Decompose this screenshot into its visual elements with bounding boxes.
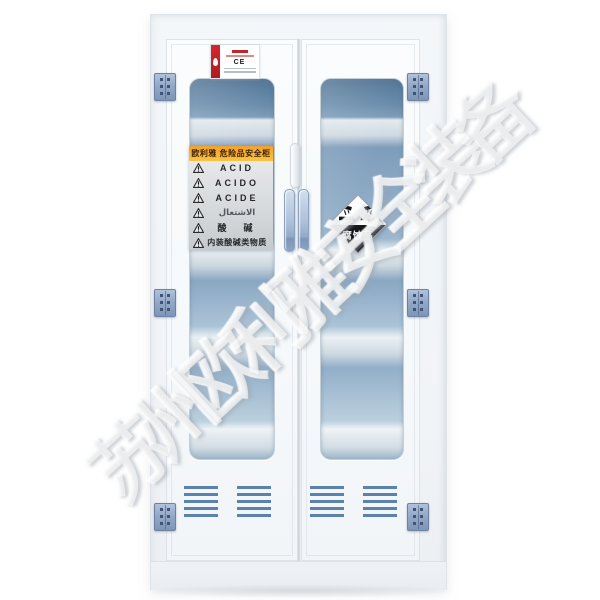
warning-triangle-icon	[193, 163, 204, 173]
warning-row-label: 酸 碱	[205, 221, 256, 234]
door-seam	[298, 39, 301, 561]
warning-row: 酸 碱	[189, 220, 273, 235]
warning-row-label: 内装酸碱类物质	[195, 237, 267, 248]
warning-row-label: الاشتعال	[207, 208, 255, 218]
label-fineprint-line	[224, 68, 256, 70]
warning-row-label: ACID	[208, 163, 254, 173]
warning-triangle-icon	[193, 208, 204, 218]
warning-triangle-icon	[193, 193, 204, 203]
vent-grille	[310, 486, 344, 518]
warning-row: ACIDO	[189, 176, 273, 191]
warning-label-body: ACID ACIDO ACIDE الاشتعال	[189, 161, 273, 250]
warning-label-header: 欧利雅 危险品安全柜	[189, 146, 273, 161]
certificate-label-body: CE	[220, 45, 259, 78]
warning-triangle-icon	[193, 223, 204, 233]
vent-grille	[363, 486, 397, 518]
flush-bolt-handle	[290, 143, 300, 188]
brand-stripe	[211, 45, 220, 78]
warning-row-label: ACIDE	[203, 193, 258, 203]
glass-reflection	[190, 79, 274, 459]
left-door: CE 欧利雅 危险品安全柜 ACID ACIDO	[166, 39, 298, 561]
glass-reflection	[321, 79, 403, 459]
certificate-label: CE	[210, 44, 260, 79]
hinge	[154, 73, 176, 101]
right-door-handle	[298, 189, 309, 252]
hinge	[407, 289, 429, 317]
vent-grille	[184, 486, 218, 518]
warning-label: 欧利雅 危险品安全柜 ACID ACIDO ACIDE	[189, 146, 273, 250]
right-door: 腐蚀品	[301, 39, 420, 561]
warning-row: 内装酸碱类物质	[189, 235, 273, 250]
right-door-window	[320, 78, 404, 460]
brand-emblem-icon	[213, 58, 218, 66]
warning-triangle-icon	[193, 238, 204, 248]
hinge	[154, 503, 176, 531]
warning-triangle-icon	[193, 178, 204, 188]
warning-row: الاشتعال	[189, 205, 273, 220]
ce-mark: CE	[234, 59, 246, 66]
cabinet-shadow	[142, 584, 457, 598]
hinge	[407, 503, 429, 531]
hinge	[154, 289, 176, 317]
left-door-window	[189, 78, 275, 460]
label-subtitle-line	[226, 55, 254, 57]
safety-cabinet: CE 欧利雅 危险品安全柜 ACID ACIDO	[150, 14, 447, 590]
hinge	[407, 73, 429, 101]
label-fineprint-line	[224, 71, 256, 73]
warning-row-label: ACIDO	[203, 178, 259, 188]
warning-row: ACID	[189, 161, 273, 176]
vent-grille	[237, 486, 271, 518]
left-door-handle	[284, 189, 295, 252]
label-title-line	[232, 50, 248, 53]
warning-row: ACIDE	[189, 191, 273, 206]
product-photo-safety-cabinet: CE 欧利雅 危险品安全柜 ACID ACIDO	[0, 0, 600, 600]
